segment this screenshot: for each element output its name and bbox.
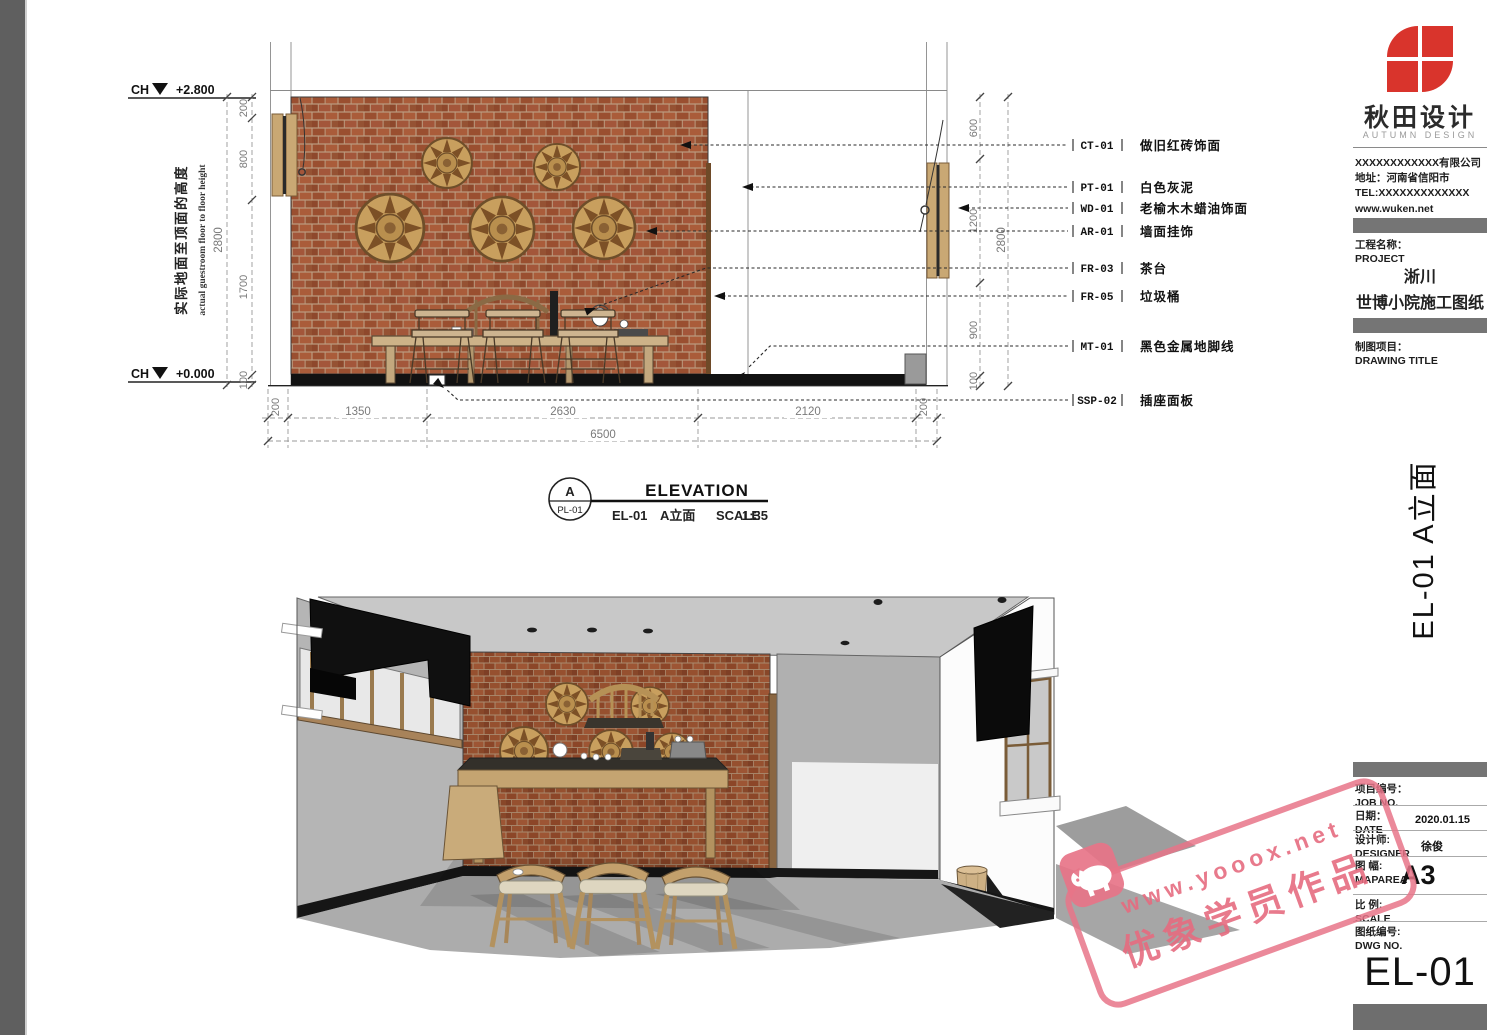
svg-text:垃圾桶: 垃圾桶 [1140, 289, 1181, 304]
divider [1353, 894, 1487, 895]
svg-text:100: 100 [238, 371, 250, 389]
svg-text:茶台: 茶台 [1139, 261, 1167, 276]
svg-text:墙面挂饰: 墙面挂饰 [1140, 224, 1194, 239]
svg-text:1700: 1700 [238, 275, 250, 299]
elevation-view: CH +2.800 CH +0.000 实际地面至顶面的高度 actual gu… [128, 42, 1248, 523]
svg-text:CH: CH [131, 83, 149, 97]
brand-name: 秋田设计 [1353, 98, 1487, 134]
svg-text:SSP-02: SSP-02 [1077, 396, 1117, 408]
divider [1353, 830, 1487, 831]
svg-text:200: 200 [918, 398, 930, 416]
elevation-thermos [550, 291, 558, 336]
drawing-canvas: CH +2.800 CH +0.000 实际地面至顶面的高度 actual gu… [0, 0, 1340, 1035]
svg-text:1350: 1350 [345, 406, 371, 418]
svg-text:200: 200 [238, 99, 250, 117]
svg-text:800: 800 [238, 150, 250, 168]
perspective-tv-panel [974, 606, 1033, 741]
drawing-sheet: CH +2.800 CH +0.000 实际地面至顶面的高度 actual gu… [0, 0, 1500, 1035]
callout-labels: CT-01 做旧红砖饰面 PT-01 白色灰泥 WD-01 老榆木木蜡油饰面 A… [1073, 138, 1248, 408]
svg-text:+0.000: +0.000 [176, 367, 215, 381]
svg-text:白色灰泥: 白色灰泥 [1140, 180, 1194, 195]
sheet-number: EL-01 [1353, 950, 1487, 995]
svg-text:+2.800: +2.800 [176, 83, 215, 97]
title-block: 秋田设计 AUTUMN DESIGN XXXXXXXXXXXX有限公司 地址：河… [1353, 0, 1487, 1035]
svg-text:做旧红砖饰面: 做旧红砖饰面 [1139, 138, 1221, 153]
exterior-shadows [1056, 806, 1240, 954]
divider [1353, 856, 1487, 857]
svg-text:FR-05: FR-05 [1080, 292, 1113, 304]
svg-text:CT-01: CT-01 [1080, 141, 1113, 153]
date-value: 2020.01.15 [1415, 814, 1470, 826]
project-label: 工程名称： PROJECT [1355, 238, 1485, 266]
svg-text:FR-03: FR-03 [1080, 264, 1113, 276]
drawing-title-label: 制图项目： DRAWING TITLE [1355, 340, 1485, 368]
svg-text:200: 200 [270, 398, 282, 416]
scale-label: 比 例: SCALE [1355, 898, 1485, 926]
svg-text:A: A [565, 484, 575, 499]
job-no-label: 项目编号： JOB NO. [1355, 782, 1485, 810]
elevation-title: A PL-01 ELEVATION EL-01 A立面 SCALE 1:35 [549, 478, 768, 523]
maparea-value: A3 [1401, 860, 1436, 891]
svg-text:EL-01: EL-01 [612, 508, 647, 523]
divider-bar [1353, 318, 1487, 333]
bottom-bar [1353, 1004, 1487, 1030]
sheet-title-vertical: EL-01 A立面 [1400, 420, 1440, 680]
elevation-right-blind [920, 120, 949, 278]
divider [1353, 921, 1487, 922]
floor-cup [513, 869, 523, 875]
svg-text:AR-01: AR-01 [1080, 227, 1113, 239]
svg-text:1200: 1200 [968, 209, 980, 233]
svg-text:CH: CH [131, 367, 149, 381]
perspective-view [281, 597, 1240, 958]
divider-bar [1353, 218, 1487, 233]
project-name: 淅川 世博小院施工图纸 [1353, 265, 1487, 316]
height-note-en: actual guestroom floor to floor height [198, 164, 208, 316]
svg-text:PT-01: PT-01 [1080, 183, 1113, 195]
svg-text:A立面: A立面 [660, 508, 695, 523]
divider [1353, 147, 1487, 148]
level-marker-bottom: CH +0.000 [128, 367, 256, 382]
divider-bar [1353, 762, 1487, 777]
svg-text:黑色金属地脚线: 黑色金属地脚线 [1140, 339, 1235, 354]
level-marker-top: CH +2.800 [128, 83, 256, 98]
brand-name-en: AUTUMN DESIGN [1353, 130, 1487, 140]
svg-text:插座面板: 插座面板 [1140, 393, 1194, 408]
svg-text:ELEVATION: ELEVATION [645, 481, 749, 500]
svg-text:WD-01: WD-01 [1080, 204, 1113, 216]
svg-text:2120: 2120 [795, 406, 821, 418]
svg-text:2630: 2630 [550, 406, 576, 418]
svg-text:900: 900 [968, 321, 980, 339]
svg-text:6500: 6500 [590, 429, 616, 441]
svg-text:100: 100 [968, 372, 980, 390]
autumn-design-logo-icon [1387, 26, 1453, 92]
svg-text:2800: 2800 [213, 227, 225, 253]
svg-text:1:35: 1:35 [742, 508, 768, 523]
elevation-trash-bin [905, 354, 926, 384]
height-note-cn: 实际地面至顶面的高度 [173, 165, 189, 315]
designer-label: 设计师: DESIGNER [1355, 833, 1485, 861]
svg-text:600: 600 [968, 119, 980, 137]
company-info: XXXXXXXXXXXX有限公司 地址：河南省信阳市 TEL:XXXXXXXXX… [1355, 156, 1487, 217]
svg-text:MT-01: MT-01 [1080, 342, 1113, 354]
designer-value: 徐俊 [1421, 838, 1443, 854]
perspective-right-wall-light [792, 762, 938, 877]
svg-text:老榆木木蜡油饰面: 老榆木木蜡油饰面 [1139, 201, 1248, 216]
divider [1353, 805, 1487, 806]
svg-text:PL-01: PL-01 [557, 505, 582, 516]
